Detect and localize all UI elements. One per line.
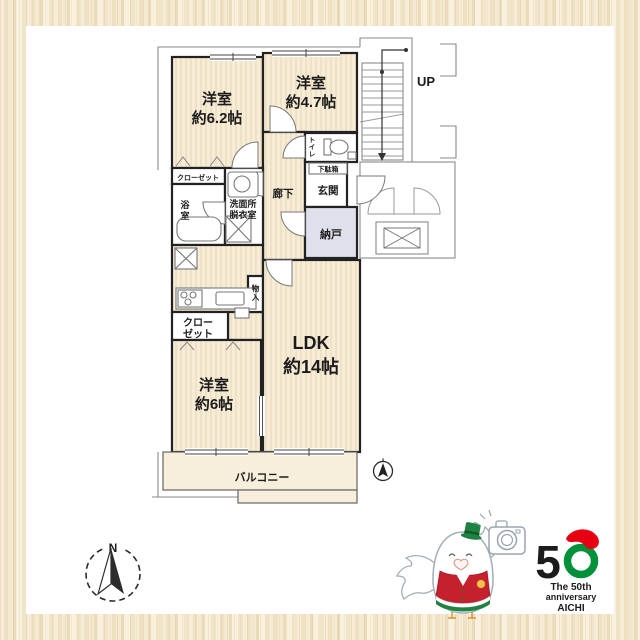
anniversary-logo: 5 The 50th anniversary AICHI	[535, 529, 599, 614]
mini-north-indicator-icon	[374, 459, 393, 481]
floor-plan: UP DN	[0, 0, 640, 640]
stairs-up-label: UP	[417, 74, 435, 89]
bird-mascot-with-camera-icon	[397, 510, 525, 618]
logo-number-5: 5	[535, 536, 561, 588]
label-genkan: 玄関	[318, 184, 339, 197]
label-toilet: トイレ	[309, 136, 316, 158]
toilet-bowl	[330, 140, 348, 154]
north-compass-icon: N	[86, 540, 140, 601]
logo-zero-ring	[568, 548, 595, 575]
sliding-door	[257, 396, 265, 436]
label-nando: 納戸	[320, 227, 342, 241]
label-shoebox: 下駄箱	[318, 165, 339, 174]
label-monoire: 物入	[251, 283, 260, 302]
logo-line3: AICHI	[557, 603, 584, 614]
elevator	[376, 222, 428, 254]
kitchen-sink	[216, 292, 244, 305]
label-balcony: バルコニー	[235, 471, 290, 484]
label-closet-bottom: クローゼット	[183, 317, 213, 341]
room-ldk	[263, 260, 360, 452]
logo-line2: anniversary	[546, 592, 597, 602]
label-hallway: 廊下	[273, 187, 294, 200]
stairwell: UP DN	[360, 48, 435, 178]
label-closet-top: クローゼット	[177, 173, 219, 182]
